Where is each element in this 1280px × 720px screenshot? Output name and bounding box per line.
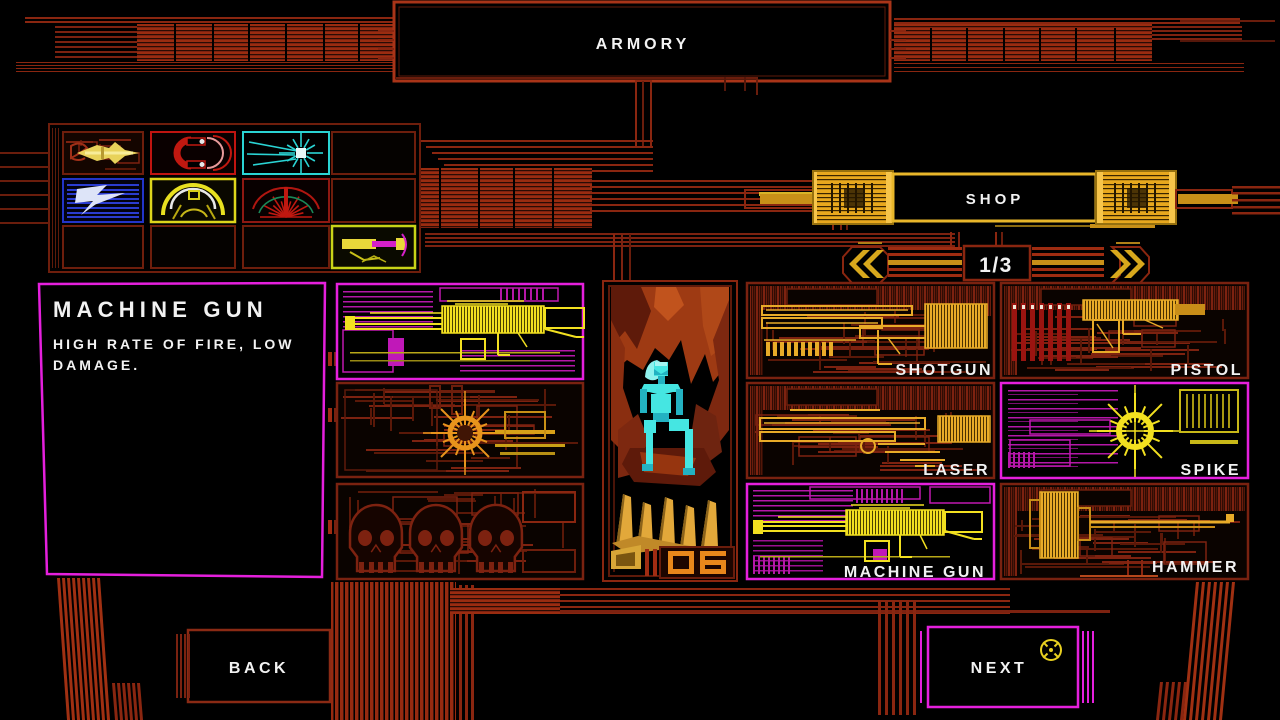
- svg-text:SHOTGUN: SHOTGUN: [896, 362, 994, 379]
- svg-text:DAMAGE.: DAMAGE.: [53, 357, 140, 373]
- svg-text:LASER: LASER: [923, 462, 990, 479]
- svg-text:1/3: 1/3: [979, 254, 1013, 277]
- svg-text:HIGH RATE OF FIRE, LOW: HIGH RATE OF FIRE, LOW: [53, 336, 295, 352]
- svg-text:ARMORY: ARMORY: [596, 36, 691, 53]
- svg-text:MACHINE GUN: MACHINE GUN: [844, 564, 986, 581]
- svg-text:BACK: BACK: [229, 660, 289, 677]
- svg-text:HAMMER: HAMMER: [1152, 559, 1239, 576]
- svg-text:PISTOL: PISTOL: [1171, 362, 1244, 379]
- svg-text:MACHINE GUN: MACHINE GUN: [53, 297, 268, 322]
- svg-text:NEXT: NEXT: [971, 660, 1028, 677]
- svg-text:SPIKE: SPIKE: [1180, 462, 1241, 479]
- svg-text:SHOP: SHOP: [966, 191, 1025, 208]
